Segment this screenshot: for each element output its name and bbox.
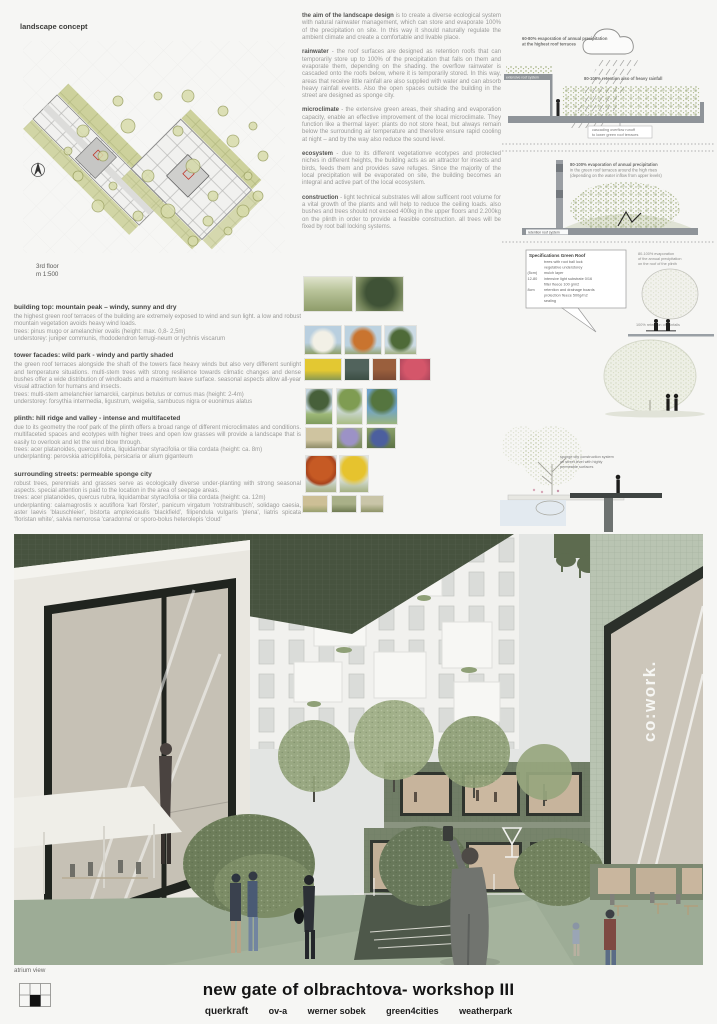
render-caption: atrium view (14, 967, 45, 974)
svg-text:at the highest roof terraces: at the highest roof terraces (522, 42, 577, 47)
body-tower-facades: the green roof terraces alongside the sh… (14, 362, 301, 391)
svg-text:sealing: sealing (544, 299, 556, 303)
understorey-building-top: understorey: juniper communis, rhododend… (14, 336, 301, 343)
vegetation-photo-street-grass-2 (331, 495, 357, 513)
trees-streets: trees: acer platanoides, quercus rubra, … (14, 495, 301, 502)
paragraph-ecosystem: ecosystem - due to its different vegetat… (302, 151, 501, 188)
vegetation-photo-liquidambar (336, 388, 363, 425)
svg-text:in the green roof terraces aro: in the green roof terraces around the hi… (570, 168, 657, 173)
phone (443, 826, 453, 841)
vegetation-photo-tilia (366, 388, 398, 425)
seated-person-2-body (666, 323, 670, 331)
walkway-column (604, 498, 613, 532)
vegetation-photo-acer (305, 388, 333, 425)
svg-text:on the roof of the plinth: on the roof of the plinth (638, 262, 677, 266)
concept-text-column: the aim of the landscape design is to cr… (302, 13, 501, 238)
seated-person-body (654, 323, 658, 331)
svg-text:of the annual precipitation: of the annual precipitation (638, 257, 682, 261)
walkway-person (616, 475, 621, 480)
street-tree-canopy-2 (502, 426, 542, 466)
standing-person-body (666, 399, 669, 413)
seated-person-2 (666, 319, 670, 323)
body-building-top: the highest green roof terraces of the b… (14, 314, 301, 329)
vegetation-photo-street-grass-1 (302, 495, 328, 513)
trees-tower-facades: trees: multi-stem amelanchier lamarckii,… (14, 392, 301, 399)
vegetation-photo-blossom-tree (304, 325, 342, 355)
plan-floor: 3rd floor (36, 263, 59, 271)
tree-shadow (605, 411, 705, 418)
label-extensive-roof: extensive roof system (506, 76, 539, 80)
plan-scale: m 1:500 (36, 271, 59, 279)
presentation-board: landscape concept (0, 0, 717, 1024)
vegetation-photo-autumn-tree (344, 325, 382, 355)
svg-text:intensive light substrate 0/16: intensive light substrate 0/16 (544, 277, 592, 281)
key-plan-highlight (30, 995, 41, 1007)
heading-tower-facades: tower facades: wild park - windy and par… (14, 352, 301, 359)
vegetation-photo-weigelia (372, 358, 397, 381)
standing-person-2-body (674, 399, 677, 413)
heading-streets: surrounding streets: permeable sponge ci… (14, 471, 301, 478)
svg-text:protection fleece 500g/m2: protection fleece 500g/m2 (544, 294, 588, 298)
label-sponge-city: sponge city construction system (560, 455, 614, 459)
vegetation-photo-green-tree (384, 325, 417, 355)
svg-text:trees with root ball lock: trees with root ball lock (544, 260, 583, 264)
flower-dot (533, 489, 535, 491)
shoulder-bag (294, 908, 304, 924)
standing-person (666, 394, 670, 398)
plan-caption: 3rd floor m 1:500 (36, 263, 59, 279)
seepage-water (500, 500, 566, 526)
bench (646, 330, 676, 332)
label-100-retention: 100% retention of rainfalls (636, 323, 680, 327)
vegetation-photo-red-maple (305, 455, 337, 493)
standing-person-2 (674, 394, 678, 398)
seated-person (654, 319, 658, 323)
label-plinth-evaporation: 80-100% evaporation (638, 252, 674, 256)
understorey-tower-facades: understorey: forsythia intermedia, ligus… (14, 399, 301, 406)
plinth-ground (628, 334, 714, 337)
label-retention: 80-100% retention also of heavy rainfall (584, 76, 662, 81)
vegetation-photo-mountain-garden (303, 276, 353, 312)
understorey-plinth: underplanting: perovskia atriciplifolia,… (14, 454, 301, 461)
person-figure-body (557, 103, 560, 116)
tower-window-2 (556, 190, 563, 198)
pedestrian-child (573, 923, 580, 957)
person-figure (556, 99, 560, 103)
svg-text:12-80: 12-80 (528, 277, 538, 281)
vegetation-photo-yellow-tree (339, 455, 369, 493)
spec-title: Specifications Green Roof (529, 253, 586, 258)
flower-dot-3 (557, 490, 559, 492)
zones-text-column: building top: mountain peak – windy, sun… (14, 295, 301, 525)
paragraph-microclimate: microclimate - the extensive green areas… (302, 107, 501, 144)
heading-plinth: plinth: hill ridge and valley - intense … (14, 415, 301, 422)
paragraph-aim: the aim of the landscape design is to cr… (302, 13, 501, 42)
svg-text:on street level with highly: on street level with highly (560, 460, 603, 464)
understorey-streets: underplanting: calamagrostis x acutiflor… (14, 503, 301, 525)
svg-text:8cm: 8cm (528, 288, 535, 292)
rain-cloud-icon (583, 29, 633, 54)
street-walkway (570, 493, 662, 498)
label-retention-roof-system: retention roof system (528, 230, 560, 234)
team-green4cities: green4cities (386, 1006, 439, 1016)
svg-text:filter fleece 100 g/m2: filter fleece 100 g/m2 (544, 282, 579, 286)
project-team: querkraft ov-a werner sobek green4cities… (0, 1001, 717, 1019)
tower-window (556, 164, 563, 172)
paragraph-rainwater: rainwater - the roof surfaces are design… (302, 49, 501, 100)
key-plan-logo (19, 983, 51, 1007)
team-weatherpark: weatherpark (459, 1006, 512, 1016)
svg-text:(5cm): (5cm) (528, 271, 538, 275)
project-title: new gate of olbrachtova- workshop III (0, 980, 717, 1000)
vegetation-photo-forsythia (304, 358, 342, 381)
plinth-tree-speckle (642, 269, 698, 319)
floor-plan-drawing (8, 36, 298, 262)
svg-text:permeable surfaces: permeable surfaces (560, 465, 593, 469)
team-werner-sobek: werner sobek (308, 1006, 366, 1016)
terrace-tree-canopy-hatch (570, 182, 680, 234)
upper-roof-vegetation (506, 66, 552, 74)
label-evaporation-top: 60-80% evaporation of annual precipitati… (522, 36, 608, 41)
vegetation-photo-grasses (305, 427, 333, 449)
spec-box-pointer (562, 308, 596, 332)
parapet (700, 102, 704, 123)
section-label: landscape concept (20, 22, 88, 31)
svg-text:to lower green roof terraces: to lower green roof terraces (592, 133, 639, 137)
trees-building-top: trees: pinus mugo or amelanchier ovalis … (14, 329, 301, 336)
lower-roof-vegetation-hatch (562, 86, 700, 116)
svg-text:vegetative understorey: vegetative understorey (544, 266, 583, 270)
trees-plinth: trees: acer platanoides, quercus rubra, … (14, 447, 301, 454)
water-concept-diagrams: 60-80% evaporation of annual precipitati… (500, 14, 717, 535)
label-cascading: cascading overflow runoff (592, 128, 636, 132)
flower-dot-2 (541, 491, 543, 493)
vegetation-photo-alium (366, 427, 396, 449)
team-querkraft: querkraft (205, 1006, 248, 1017)
lower-roof-slab (508, 116, 704, 123)
svg-text:(depending on the water inflow: (depending on the water inflow from uppe… (570, 173, 662, 178)
team-ov-a: ov-a (269, 1006, 288, 1016)
body-streets: robust trees, perennials and grasses ser… (14, 481, 301, 496)
vegetation-photo-ligustrum (344, 358, 370, 381)
facade-wall (550, 74, 553, 120)
vegetation-photo-pinus-mugo (355, 276, 404, 312)
svg-text:mulch layer: mulch layer (544, 271, 564, 275)
vegetation-photo-street-grass-3 (360, 495, 384, 513)
atrium-rendering: co:work. (14, 534, 703, 965)
cowork-sign: co:work. (640, 660, 659, 742)
vegetation-photo-euonimus (399, 358, 431, 381)
walkway-person-body (616, 480, 619, 494)
label-evaporation-terraces: 80-100% evaporation of annual precipitat… (570, 162, 658, 167)
svg-text:retention and drainage boards: retention and drainage boards (544, 288, 595, 292)
body-plinth: due to its geometry the roof park of the… (14, 425, 301, 447)
vegetation-photo-perovskia (336, 427, 363, 449)
paragraph-construction: construction - light technical substrate… (302, 195, 501, 232)
heading-building-top: building top: mountain peak – windy, sun… (14, 304, 301, 311)
